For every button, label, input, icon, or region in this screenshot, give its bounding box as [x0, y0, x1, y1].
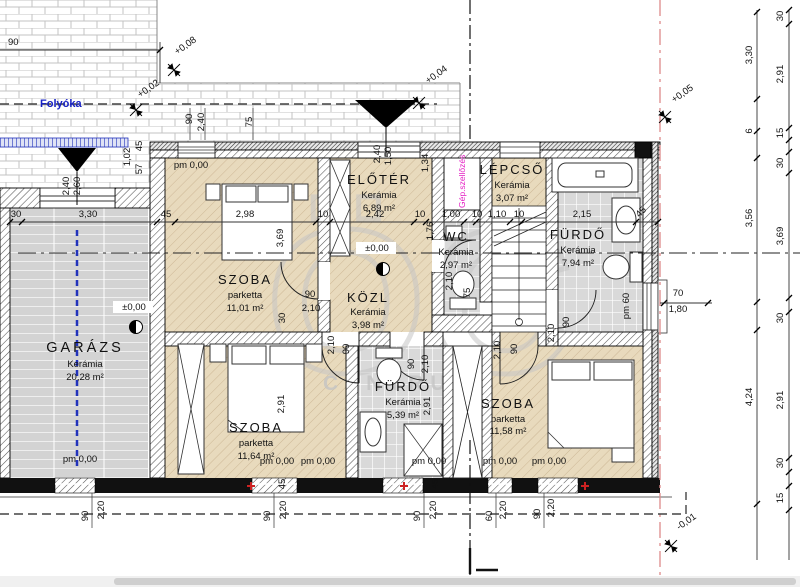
- svg-text:11,58 m²: 11,58 m²: [490, 426, 527, 437]
- svg-text:Kerámia: Kerámia: [560, 245, 596, 256]
- dim-label: 2,91: [775, 65, 786, 84]
- zero-level-label: ±0,00: [365, 243, 389, 254]
- svg-text:SZOBA: SZOBA: [229, 420, 283, 435]
- dim-label: 10: [415, 209, 426, 220]
- dim-label: 90: [184, 114, 195, 125]
- vent-note: Gép.szellőzés: [457, 155, 467, 208]
- svg-text:parketta: parketta: [228, 290, 263, 301]
- dim-label: 75: [244, 117, 255, 128]
- svg-text:20,28 m²: 20,28 m²: [66, 372, 104, 383]
- dim-label: 30: [11, 209, 22, 220]
- svg-text:Kerámia: Kerámia: [350, 307, 386, 318]
- dim-label: 2,60: [72, 177, 83, 196]
- dim-label: 15: [775, 128, 786, 139]
- dim-label: +0,05: [670, 83, 696, 106]
- dim-label: 2,20: [96, 501, 107, 520]
- dim-label: 2,40: [196, 113, 207, 132]
- dim-label: 2,91: [276, 395, 287, 414]
- svg-text:KÖZL: KÖZL: [347, 290, 389, 305]
- dim-label: 2,20: [498, 501, 509, 520]
- dim-label: pm 0,00: [260, 456, 294, 467]
- dim-label: 90: [532, 509, 543, 520]
- dim-label: 2,20: [428, 501, 439, 520]
- dim-label: 30: [775, 313, 786, 324]
- dim-label: 90: [341, 344, 352, 355]
- dim-label: pm 0,00: [483, 456, 517, 467]
- dim-label: 90: [305, 289, 316, 300]
- dim-label: pm 0,00: [412, 456, 446, 467]
- dim-label: 3,69: [775, 227, 786, 246]
- dim-label: 1,00: [442, 209, 461, 220]
- dim-label: 60: [484, 511, 495, 522]
- dim-label: 90: [80, 511, 91, 522]
- dim-label: 15: [775, 493, 786, 504]
- dim-label: 2,40: [61, 177, 72, 196]
- vent-shaft: [453, 346, 482, 478]
- dim-label: pm 0,00: [174, 160, 208, 171]
- dim-label: pm 60: [621, 293, 632, 319]
- dim-label: 2,42: [366, 209, 385, 220]
- dim-label: 45: [277, 479, 288, 490]
- svg-text:parketta: parketta: [239, 438, 274, 449]
- dim-label: 2,10: [546, 324, 557, 343]
- dim-label: 90: [412, 511, 423, 522]
- svg-text:parketta: parketta: [491, 414, 526, 425]
- folyoka-label: Folyóka: [40, 98, 82, 110]
- svg-text:FÜRDŐ: FÜRDŐ: [375, 379, 431, 394]
- dim-label: 3,69: [275, 229, 286, 248]
- dim-label: 30: [775, 11, 786, 22]
- dim-label: 1,02: [122, 148, 133, 167]
- dim-label: 30: [775, 158, 786, 169]
- dim-label: 90: [509, 344, 520, 355]
- dim-label: 45: [161, 209, 172, 220]
- zero-level-label: ±0,00: [122, 302, 146, 313]
- dim-label: 3,30: [744, 46, 755, 65]
- svg-text:Kerámia: Kerámia: [438, 247, 474, 258]
- dim-label: 10: [472, 209, 483, 220]
- dim-label: 45: [430, 479, 441, 490]
- dim-label: 4,24: [744, 388, 755, 407]
- svg-text:Kerámia: Kerámia: [494, 180, 530, 191]
- dim-label: 90: [262, 511, 273, 522]
- svg-text:WC: WC: [443, 229, 469, 244]
- svg-text:2,97 m²: 2,97 m²: [440, 260, 472, 271]
- dim-label: 10: [318, 209, 329, 220]
- dim-label: 2,91: [775, 391, 786, 410]
- dim-label: 2,40: [372, 145, 383, 164]
- dim-label: 70: [673, 288, 684, 299]
- svg-text:FÜRDŐ: FÜRDŐ: [550, 227, 606, 242]
- dim-label: 1,10: [488, 209, 507, 220]
- dim-label: 6: [744, 128, 755, 133]
- dim-label: 2,98: [236, 209, 255, 220]
- dim-label: 3,56: [744, 209, 755, 228]
- dim-label: 57: [134, 164, 145, 175]
- scrollbar-thumb[interactable]: [114, 578, 796, 585]
- svg-text:Kerámia: Kerámia: [67, 359, 103, 370]
- dim-label: 30: [277, 313, 288, 324]
- svg-text:GARÁZS: GARÁZS: [46, 339, 124, 356]
- svg-text:Kerámia: Kerámia: [361, 190, 397, 201]
- dim-label: 2,10: [302, 303, 321, 314]
- dim-label: 3,30: [79, 209, 98, 220]
- dim-label: 1,80: [669, 304, 688, 315]
- dim-label: 10: [514, 209, 525, 220]
- dim-label: 30: [775, 458, 786, 469]
- dim-label: 2,20: [546, 499, 557, 518]
- svg-text:SZOBA: SZOBA: [481, 396, 535, 411]
- horizontal-scrollbar[interactable]: [0, 576, 800, 587]
- dim-label: 2,91: [422, 397, 433, 416]
- dim-label: 2,10: [420, 355, 431, 374]
- drain-grate: [0, 138, 128, 147]
- room-kozl: KÖZL Kerámia 3,98 m²: [347, 290, 389, 331]
- dim-label: pm 0,00: [532, 456, 566, 467]
- dim-label: pm 0,00: [301, 456, 335, 467]
- dim-label: pm 0,00: [63, 454, 97, 465]
- dim-label: 2,15: [573, 209, 592, 220]
- svg-text:LÉPCSŐ: LÉPCSŐ: [480, 162, 545, 177]
- dim-label: 90: [406, 359, 417, 370]
- svg-text:11,01 m²: 11,01 m²: [227, 303, 264, 314]
- svg-text:ELŐTÉR: ELŐTÉR: [347, 172, 411, 187]
- dim-label: 2,10: [444, 272, 455, 291]
- dim-label: 90: [561, 317, 572, 328]
- dim-label: 45: [134, 141, 145, 152]
- dim-label: 1,50: [383, 147, 394, 166]
- dim-label: 1,34: [420, 154, 431, 173]
- dim-label: 2,20: [278, 501, 289, 520]
- svg-text:3,98 m²: 3,98 m²: [352, 320, 384, 331]
- svg-text:5,39 m²: 5,39 m²: [387, 410, 419, 421]
- svg-text:3,07 m²: 3,07 m²: [496, 193, 528, 204]
- dim-label: 2,10: [326, 336, 337, 355]
- dim-label: 1,76: [425, 222, 436, 241]
- svg-text:7,94 m²: 7,94 m²: [562, 258, 594, 269]
- dim-label: 2,10: [492, 341, 503, 360]
- svg-text:Kerámia: Kerámia: [385, 397, 421, 408]
- dim-label: 90: [8, 37, 19, 48]
- dim-label: 75: [462, 288, 473, 299]
- dim-label: +0,08: [173, 35, 199, 58]
- svg-text:SZOBA: SZOBA: [218, 272, 272, 287]
- floor-plan-canvas: Folyóka ÖC CENTRUM: [0, 0, 800, 587]
